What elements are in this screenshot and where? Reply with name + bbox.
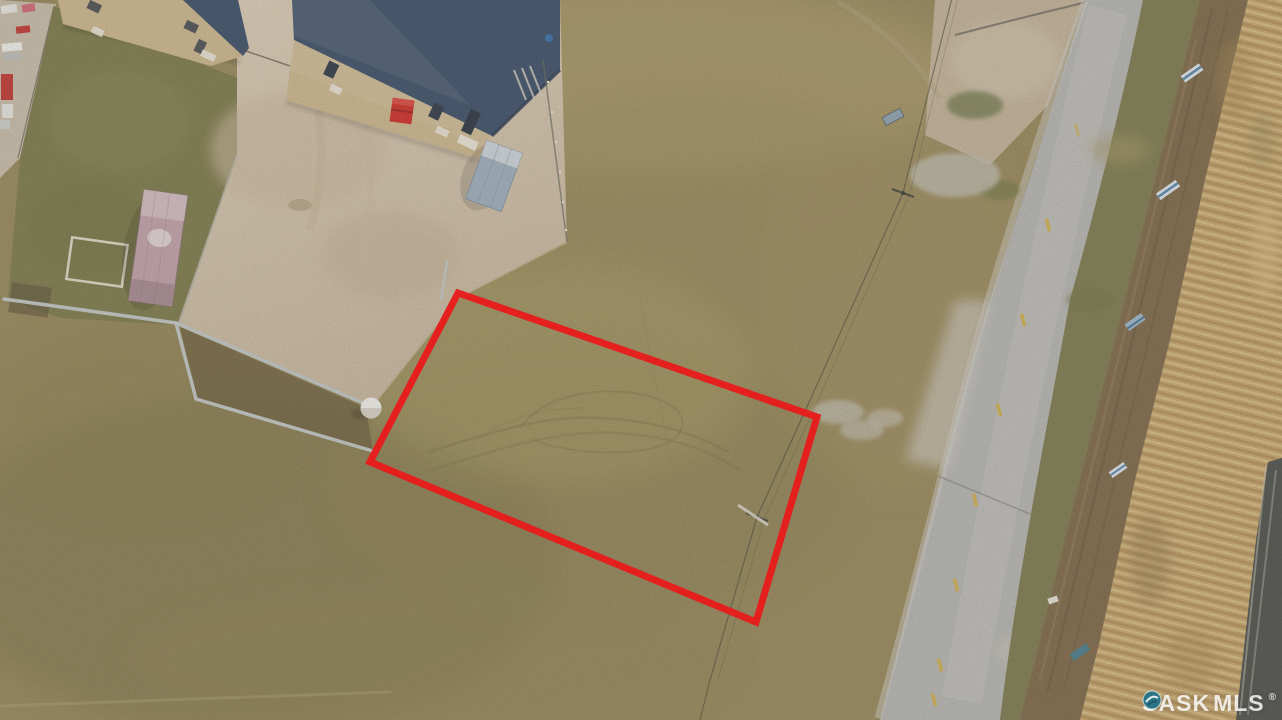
watermark: SASK MLS ® xyxy=(1142,690,1277,717)
scene-canvas xyxy=(0,0,1282,720)
watermark-text-right: MLS xyxy=(1213,690,1265,717)
aerial-photo: SASK MLS ® xyxy=(0,0,1282,720)
grain-light xyxy=(0,0,1282,720)
sask-mls-logo-icon xyxy=(1142,690,1162,710)
registered-trademark-symbol: ® xyxy=(1269,692,1277,703)
